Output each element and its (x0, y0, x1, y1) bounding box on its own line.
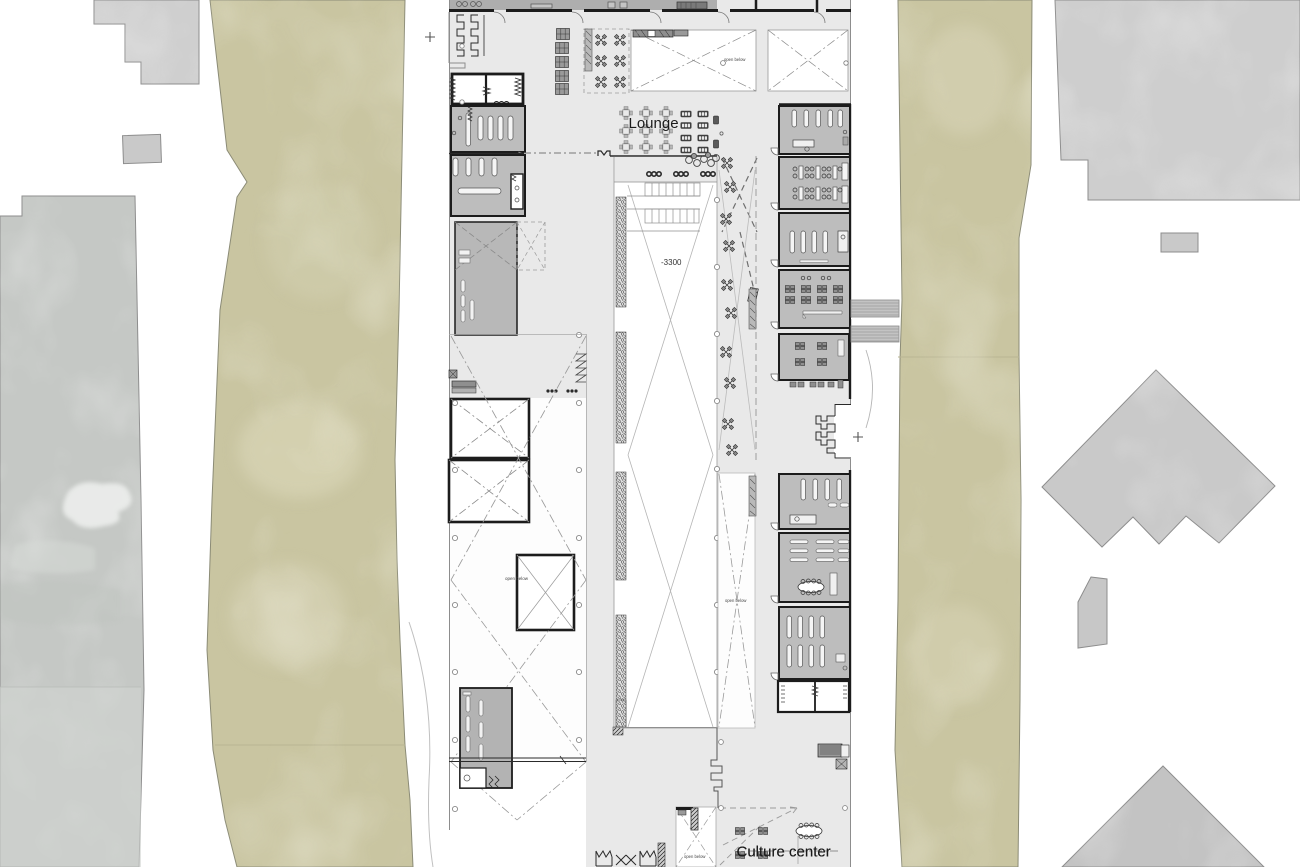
svg-text:open below: open below (725, 598, 747, 603)
svg-text:open below: open below (684, 854, 706, 859)
svg-text:open below: open below (724, 57, 746, 62)
svg-text:open below: open below (505, 576, 529, 581)
svg-text:Culture center: Culture center (737, 844, 831, 861)
svg-text:-3300: -3300 (661, 258, 682, 267)
svg-text:Lounge: Lounge (629, 115, 679, 132)
